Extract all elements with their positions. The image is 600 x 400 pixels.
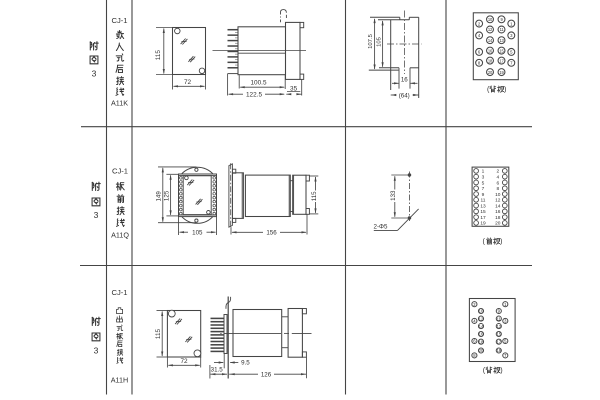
svg-text:20: 20 (479, 348, 484, 353)
svg-text:115: 115 (155, 50, 162, 61)
svg-text:): ) (500, 237, 502, 246)
svg-text:1: 1 (482, 169, 485, 175)
svg-text:17: 17 (496, 339, 501, 344)
svg-text:4: 4 (496, 174, 499, 180)
svg-text:107.5: 107.5 (368, 33, 374, 48)
svg-text:CJ-1: CJ-1 (112, 167, 128, 176)
svg-text:18: 18 (479, 339, 484, 344)
svg-text:): ) (500, 366, 502, 375)
svg-text:): ) (504, 85, 506, 94)
svg-text:5: 5 (482, 180, 485, 186)
svg-text:CJ-1: CJ-1 (111, 288, 127, 297)
svg-text:16: 16 (479, 332, 484, 337)
svg-text:12: 12 (479, 316, 484, 321)
svg-text:8: 8 (496, 186, 499, 192)
svg-text:CJ-1: CJ-1 (111, 16, 127, 25)
svg-text:3: 3 (94, 346, 99, 356)
svg-text:15: 15 (496, 332, 501, 337)
svg-text:133: 133 (390, 190, 397, 201)
svg-text:13: 13 (496, 324, 501, 329)
svg-text:72: 72 (184, 79, 192, 86)
svg-text:105: 105 (192, 229, 203, 236)
svg-text:10: 10 (495, 192, 501, 198)
svg-text:7: 7 (482, 186, 485, 192)
svg-text:19: 19 (480, 221, 486, 227)
svg-text:35: 35 (290, 85, 298, 92)
svg-text:6: 6 (496, 180, 499, 186)
svg-text:115: 115 (311, 191, 318, 201)
svg-text:3: 3 (94, 210, 99, 220)
svg-text:A11K: A11K (111, 99, 128, 108)
svg-text:2: 2 (496, 169, 499, 175)
svg-text:10: 10 (479, 309, 484, 314)
svg-text:149: 149 (155, 191, 162, 202)
svg-text:3: 3 (92, 69, 97, 79)
svg-text:9.5: 9.5 (241, 360, 250, 367)
svg-text:16: 16 (401, 76, 408, 83)
svg-text:12: 12 (495, 198, 501, 204)
svg-text:11: 11 (481, 198, 486, 204)
svg-text:122.5: 122.5 (246, 91, 262, 98)
svg-text:3: 3 (482, 174, 485, 180)
svg-text:15: 15 (480, 209, 486, 215)
svg-text:A11Q: A11Q (111, 231, 129, 240)
svg-text:(64): (64) (399, 92, 410, 99)
svg-text:16: 16 (495, 209, 501, 215)
svg-text:19: 19 (496, 348, 501, 353)
svg-text:105: 105 (377, 36, 383, 47)
svg-text:126: 126 (261, 371, 272, 378)
svg-text:11: 11 (497, 316, 502, 321)
svg-text:100.5: 100.5 (251, 79, 267, 86)
svg-text:17: 17 (480, 215, 486, 221)
svg-text:9: 9 (482, 192, 485, 198)
svg-text:2-Φ5: 2-Φ5 (374, 224, 388, 231)
svg-text:14: 14 (495, 203, 501, 209)
svg-text:115: 115 (155, 328, 162, 339)
svg-text:72: 72 (180, 358, 188, 365)
svg-text:156: 156 (266, 229, 277, 236)
svg-text:14: 14 (479, 324, 484, 329)
svg-text:18: 18 (495, 215, 501, 221)
svg-text:20: 20 (495, 221, 501, 227)
svg-text:125: 125 (163, 190, 170, 201)
svg-text:A11H: A11H (111, 376, 128, 385)
svg-text:31.5: 31.5 (211, 367, 224, 374)
svg-text:13: 13 (480, 203, 486, 209)
